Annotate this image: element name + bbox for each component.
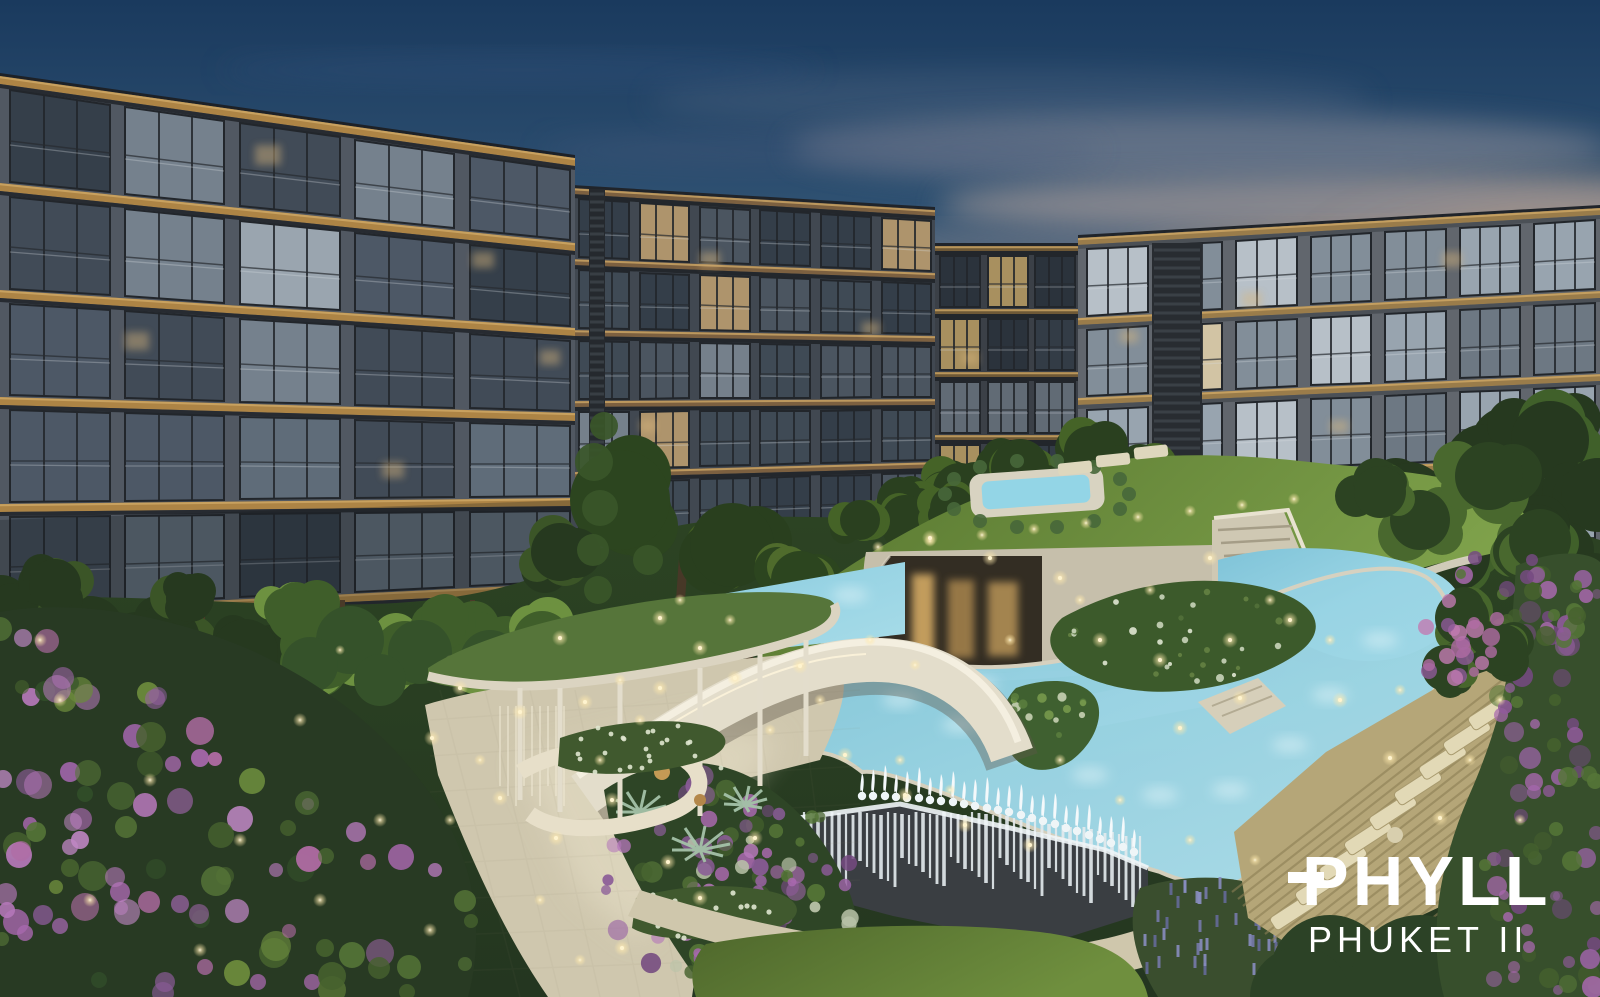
svg-text:PHYLL: PHYLL: [1302, 842, 1551, 920]
svg-text:PHUKET II: PHUKET II: [1308, 919, 1528, 960]
